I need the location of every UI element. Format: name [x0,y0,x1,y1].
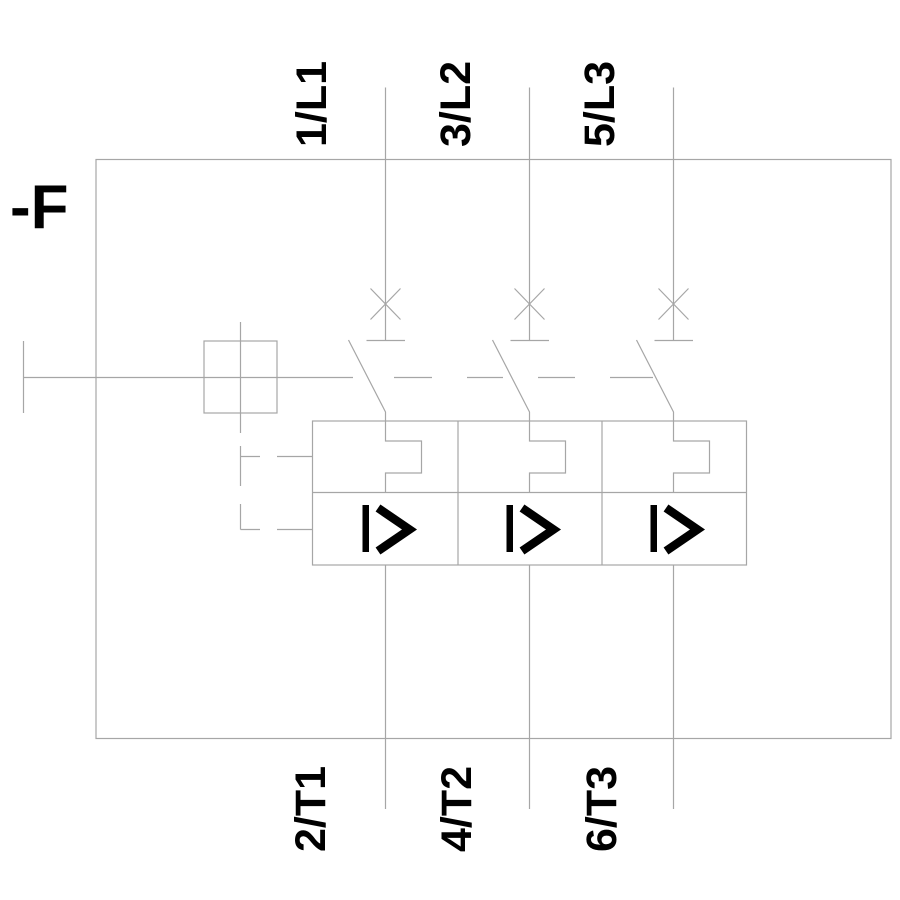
enclosure-outline [96,160,891,739]
switch-blade-1 [349,340,386,421]
terminal-label-4T2: 4/T2 [435,766,479,852]
terminal-label-5L3: 5/L3 [578,61,622,147]
schematic-canvas: -F 1/L1 3/L2 5/L3 2/T1 4/T2 6/T3 [0,0,900,900]
switch-blade-3 [637,340,674,421]
overcurrent-trip-symbol-1 [363,505,410,552]
overcurrent-trip-symbol-3 [651,505,698,552]
terminal-label-1L1: 1/L1 [290,61,334,147]
trip-linkage-dashed [241,446,313,530]
terminal-label-2T1: 2/T1 [289,766,333,852]
operating-handle [24,341,354,413]
terminal-label-3L2: 3/L2 [434,61,478,147]
terminal-label-6T3: 6/T3 [580,766,624,852]
thermal-overload-element-2 [530,421,566,493]
switch-blade-2 [493,340,530,421]
pole-1 [349,88,422,810]
pole-2 [493,88,566,810]
overcurrent-trip-symbol-2 [507,505,554,552]
thermal-overload-element-1 [386,421,422,493]
device-tag-label: -F [10,177,69,239]
pole-3 [637,88,710,810]
thermal-overload-element-3 [674,421,710,493]
